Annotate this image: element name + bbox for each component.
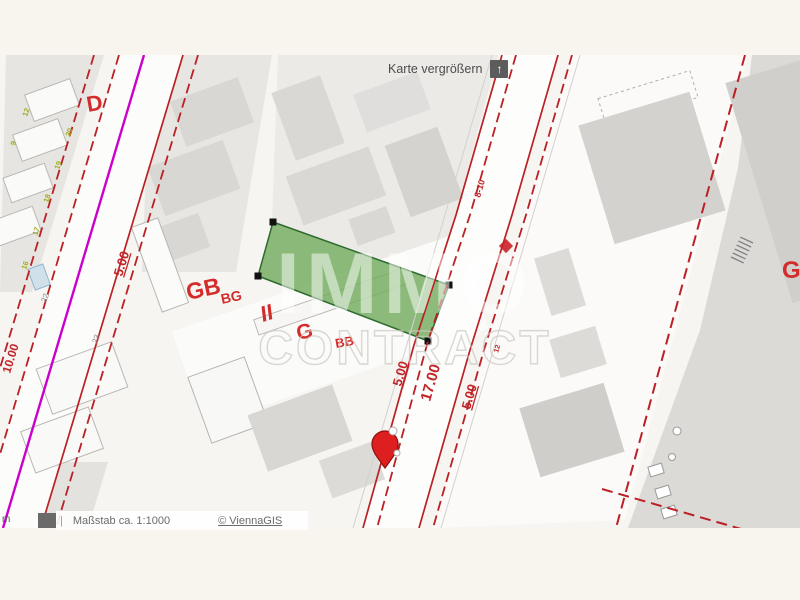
- zone-label-gb-sub: BG: [219, 287, 243, 307]
- footer-divider: |: [60, 515, 63, 527]
- map-widget-fragment: [38, 513, 56, 528]
- scale-unit-label: m: [2, 514, 10, 525]
- map-canvas: D GB BG II G BB G 5.00 17.00 5.00 5.00 1…: [0, 55, 800, 528]
- zone-label-d: D: [85, 90, 105, 117]
- watermark-line2: CONTRACT: [258, 322, 551, 375]
- dim-west-depth: 10.00: [0, 342, 22, 375]
- watermark: IMMO CONTRACT: [258, 236, 551, 375]
- scale-label: Maßstab ca. 1:1000: [73, 515, 170, 527]
- svg-text:23: 23: [90, 333, 102, 345]
- enlarge-map-button[interactable]: ↑: [490, 60, 508, 78]
- zone-label-g-right: G: [782, 257, 800, 284]
- cadastral-map[interactable]: D GB BG II G BB G 5.00 17.00 5.00 5.00 1…: [0, 55, 800, 528]
- enlarge-map-label: Karte vergrößern: [388, 62, 482, 76]
- viennagis-attribution-link[interactable]: © ViennaGIS: [218, 515, 282, 527]
- arrow-up-icon: ↑: [496, 63, 502, 75]
- watermark-line1: IMMO: [276, 236, 534, 332]
- enlarge-map-control[interactable]: Karte vergrößern ↑: [388, 58, 508, 80]
- listing-map-page: { "controls": { "enlarge_label": "Karte …: [0, 0, 800, 600]
- map-footer-bar: | Maßstab ca. 1:1000 © ViennaGIS: [56, 511, 308, 530]
- zone-label-gb: GB: [184, 272, 223, 305]
